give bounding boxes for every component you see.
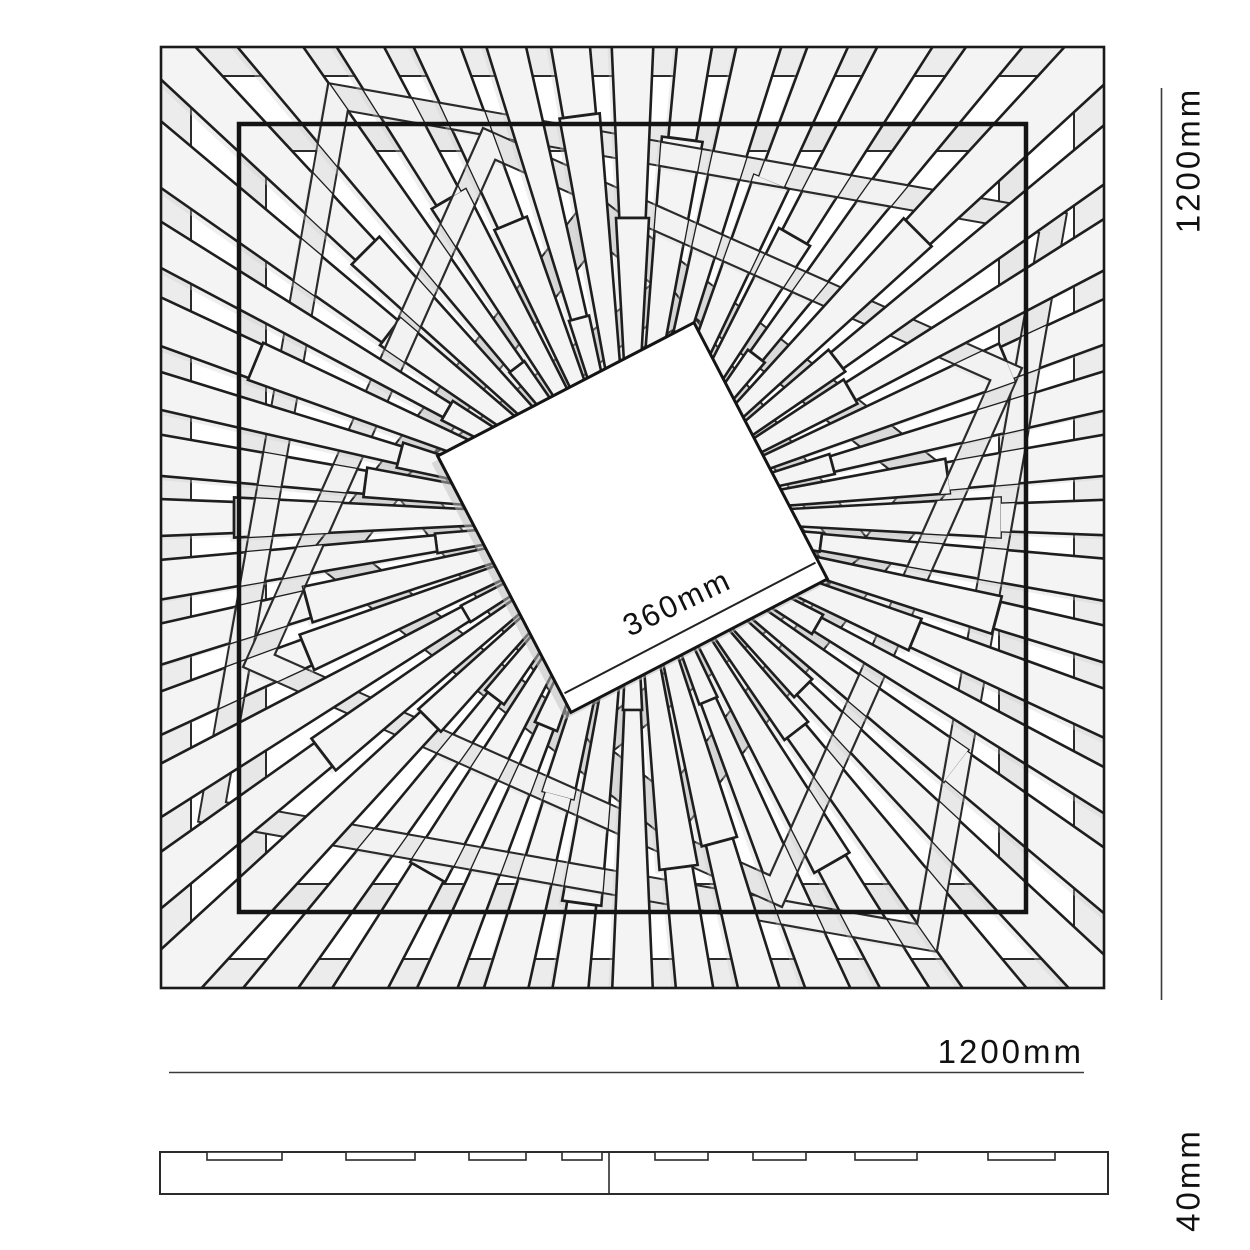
svg-text:1200mm: 1200mm bbox=[1170, 87, 1207, 233]
svg-text:40mm: 40mm bbox=[1170, 1128, 1207, 1232]
svg-text:1200mm: 1200mm bbox=[938, 1033, 1084, 1070]
